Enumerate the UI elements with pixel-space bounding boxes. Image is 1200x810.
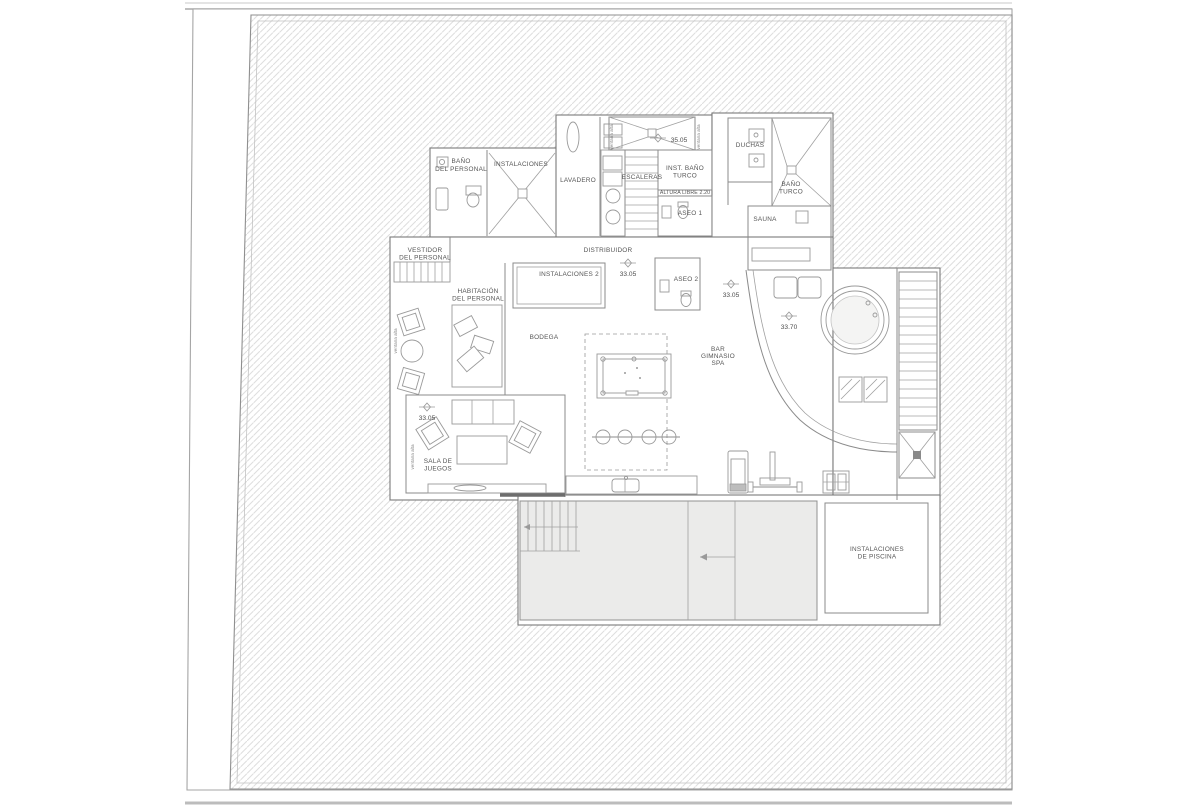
annotation-ventana-alta-1: ventana alta	[609, 124, 614, 149]
label-escaleras: ESCALERAS	[622, 174, 663, 181]
jacuzzi	[821, 286, 889, 354]
swimming-pool	[500, 495, 817, 620]
label-instalaciones2: INSTALACIONES 2	[539, 271, 599, 278]
label-duchas: DUCHAS	[736, 142, 765, 149]
floor-plan-canvas: BAÑODEL PERSONAL INSTALACIONES LAVADERO …	[0, 0, 1200, 810]
svg-text:35.05: 35.05	[671, 137, 688, 144]
label-lavadero: LAVADERO	[560, 177, 596, 184]
label-instalaciones: INSTALACIONES	[494, 161, 548, 168]
label-bodega: BODEGA	[530, 334, 559, 341]
annotation-ventana-alta-4: ventana alta	[410, 444, 415, 469]
svg-text:33.70: 33.70	[781, 324, 798, 331]
annotation-ventana-alta-3: ventana alta	[393, 328, 398, 353]
annotation-ventana-alta-2: ventana alta	[696, 124, 701, 149]
scanned-plan-page: BAÑODEL PERSONAL INSTALACIONES LAVADERO …	[0, 0, 1200, 810]
svg-text:33.05: 33.05	[620, 271, 637, 278]
svg-text:33.05: 33.05	[419, 415, 436, 422]
label-aseo1: ASEO 1	[678, 210, 703, 217]
label-sauna: SAUNA	[753, 216, 777, 223]
label-inst-piscina: INSTALACIONESDE PISCINA	[850, 546, 904, 561]
label-distribuidor: DISTRIBUIDOR	[584, 247, 633, 254]
label-bano-turco: BAÑOTURCO	[779, 179, 803, 196]
billiard-table	[597, 354, 671, 398]
label-habitacion: HABITACIÓNDEL PERSONAL	[452, 286, 504, 303]
label-sala-juegos: SALA DEJUEGOS	[424, 458, 452, 473]
label-altura-libre: ALTURA LIBRE 2.20	[660, 190, 710, 196]
label-aseo2: ASEO 2	[674, 276, 699, 283]
svg-text:33.05: 33.05	[723, 292, 740, 299]
